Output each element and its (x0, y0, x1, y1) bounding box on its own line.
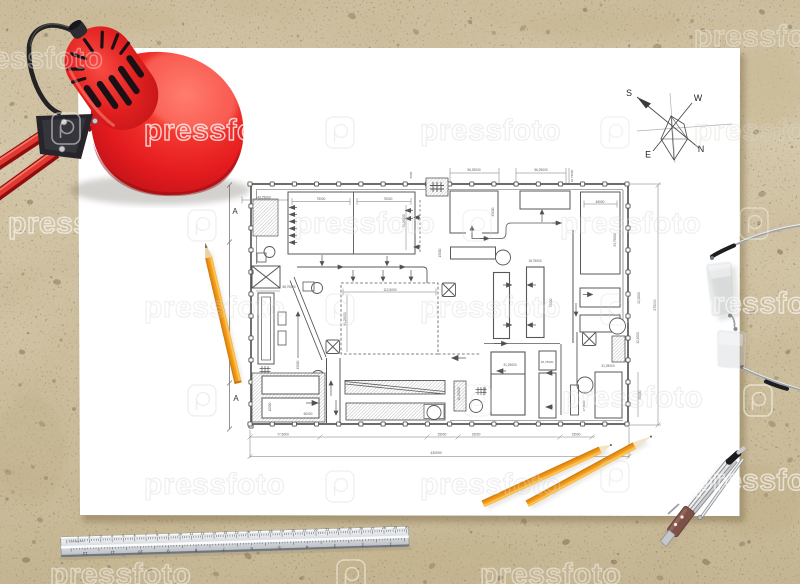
svg-text:45000: 45000 (596, 200, 605, 204)
svg-text:15000: 15000 (438, 248, 442, 257)
svg-text:56,25000: 56,25000 (467, 168, 481, 172)
svg-text:29: 29 (393, 526, 397, 530)
svg-text:60000: 60000 (304, 412, 313, 416)
svg-text:5000: 5000 (409, 171, 413, 178)
svg-text:17: 17 (257, 530, 261, 534)
svg-text:15000: 15000 (472, 433, 481, 437)
svg-text:16: 16 (246, 530, 250, 534)
svg-text:12: 12 (82, 551, 87, 556)
svg-text:31,25000: 31,25000 (503, 363, 517, 367)
svg-text:S: S (626, 88, 632, 98)
svg-text:E: E (645, 150, 651, 160)
svg-text:11: 11 (190, 532, 194, 536)
svg-text:26: 26 (359, 527, 363, 531)
svg-text:27: 27 (371, 526, 375, 530)
svg-text:25000: 25000 (438, 433, 447, 437)
svg-text:77,5000: 77,5000 (277, 433, 289, 437)
svg-text:6: 6 (134, 534, 136, 538)
svg-text:10: 10 (138, 549, 143, 554)
svg-text:112,5000: 112,5000 (383, 288, 396, 292)
svg-text:75000: 75000 (384, 197, 393, 201)
svg-text:15000: 15000 (572, 433, 581, 437)
svg-text:22: 22 (314, 528, 318, 532)
svg-text:12,5000: 12,5000 (636, 332, 640, 344)
svg-text:20: 20 (291, 529, 295, 533)
svg-text:15000: 15000 (296, 360, 300, 369)
svg-text:9: 9 (168, 533, 170, 537)
svg-text:28: 28 (382, 526, 386, 530)
svg-text:21: 21 (303, 528, 307, 532)
svg-text:1: 1 (77, 535, 79, 539)
svg-text:31,25000: 31,25000 (601, 364, 615, 368)
svg-text:10000: 10000 (268, 402, 272, 411)
svg-text:56,25000: 56,25000 (534, 168, 548, 172)
svg-text:18,75000: 18,75000 (528, 259, 542, 263)
svg-text:A: A (232, 207, 238, 216)
svg-text:45000: 45000 (491, 207, 495, 216)
svg-text:25: 25 (348, 527, 352, 531)
svg-text:275000: 275000 (653, 299, 657, 310)
svg-text:43,75000: 43,75000 (257, 196, 271, 200)
svg-text:12: 12 (201, 531, 205, 535)
svg-text:19: 19 (280, 529, 284, 533)
svg-text:W: W (694, 93, 703, 103)
svg-text:7: 7 (145, 533, 147, 537)
svg-text:23: 23 (325, 528, 329, 532)
svg-text:75000: 75000 (317, 197, 326, 201)
svg-text:18,75000: 18,75000 (570, 169, 574, 182)
svg-text:15: 15 (235, 530, 239, 534)
svg-text:3: 3 (100, 535, 102, 539)
svg-text:24: 24 (337, 527, 341, 531)
svg-text:16,25000: 16,25000 (457, 387, 461, 401)
svg-text:58,75000: 58,75000 (282, 285, 296, 289)
svg-text:A: A (233, 394, 239, 403)
svg-text:430000: 430000 (430, 451, 441, 455)
svg-text:22,5000: 22,5000 (637, 292, 641, 304)
svg-text:75000: 75000 (483, 386, 487, 395)
svg-text:2: 2 (88, 535, 90, 539)
svg-text:14: 14 (223, 531, 227, 535)
svg-text:4: 4 (111, 534, 113, 538)
svg-text:13: 13 (212, 531, 216, 535)
svg-text:18,75000: 18,75000 (541, 360, 554, 364)
svg-text:8: 8 (156, 533, 158, 537)
svg-text:10: 10 (178, 532, 182, 536)
svg-text:30: 30 (405, 525, 409, 529)
svg-text:18: 18 (269, 529, 273, 533)
svg-text:5: 5 (122, 534, 124, 538)
